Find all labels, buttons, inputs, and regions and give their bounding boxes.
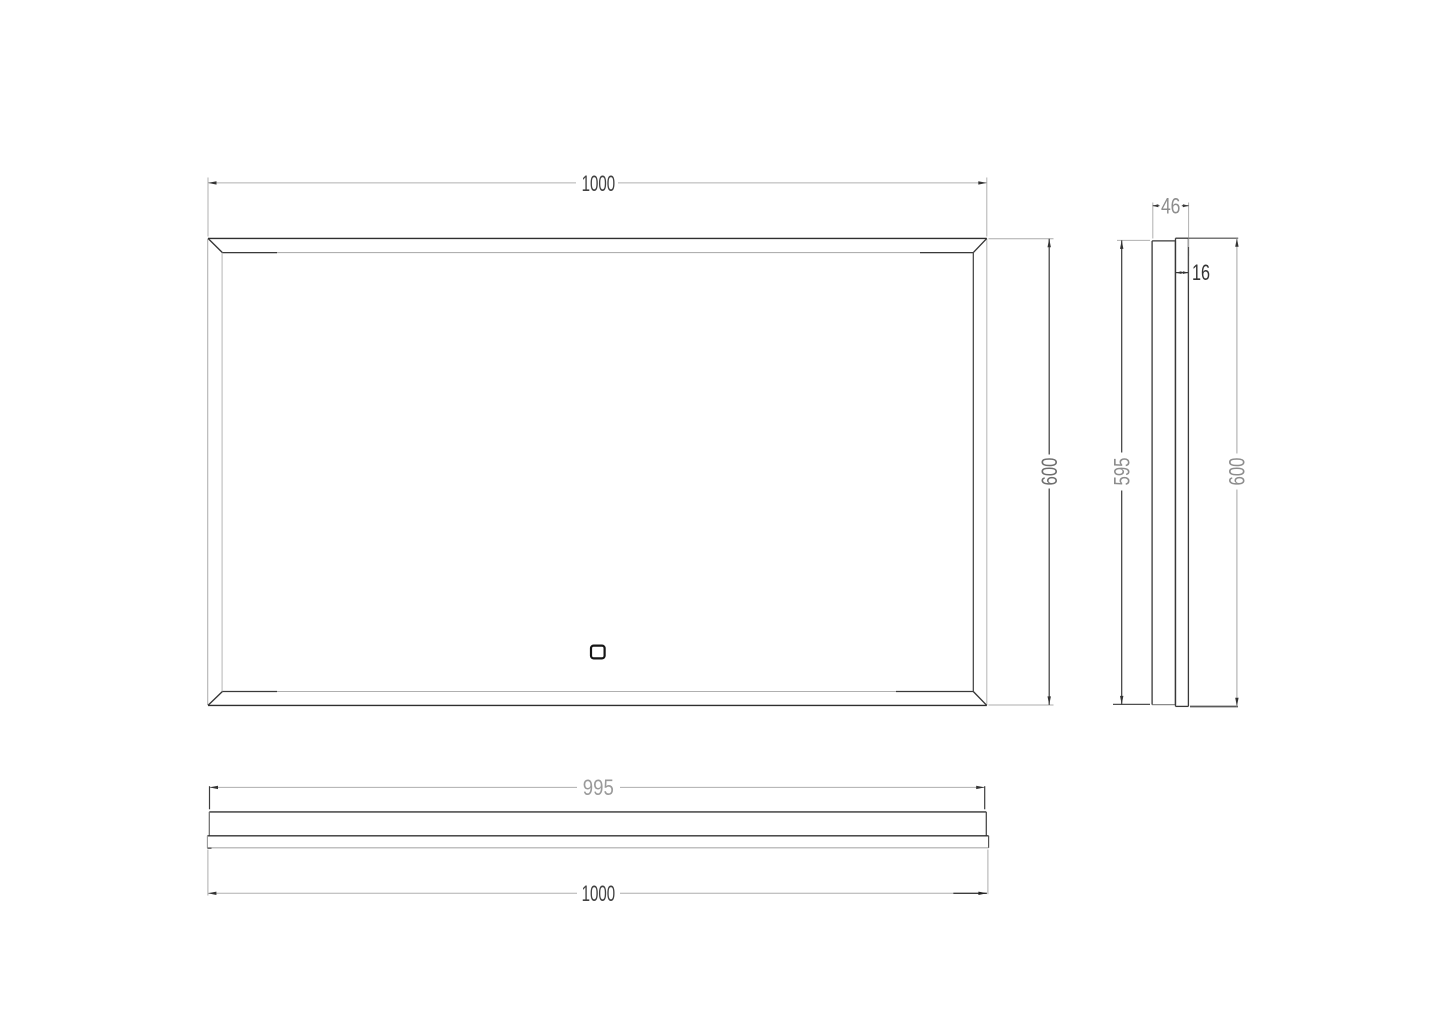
svg-text:46: 46 [1161, 193, 1181, 218]
svg-text:600: 600 [1225, 458, 1250, 486]
svg-text:600: 600 [1037, 458, 1062, 486]
svg-text:995: 995 [583, 775, 614, 800]
svg-text:595: 595 [1109, 458, 1134, 486]
svg-text:16: 16 [1192, 260, 1210, 285]
svg-text:1000: 1000 [582, 171, 616, 196]
svg-text:1000: 1000 [582, 881, 616, 906]
